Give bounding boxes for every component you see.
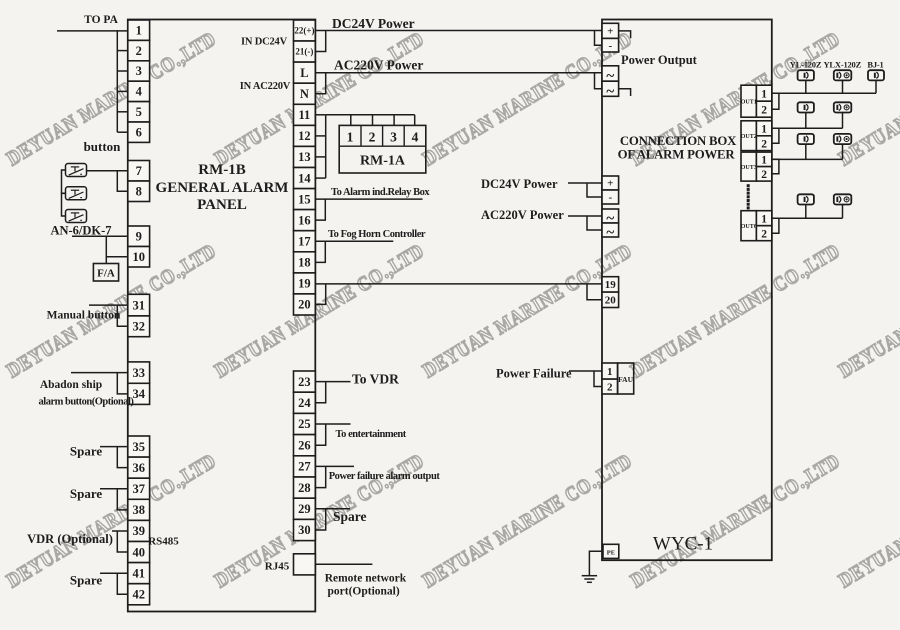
svg-text:29: 29 [298, 502, 311, 516]
svg-text:Remote network: Remote network [325, 573, 407, 585]
svg-text:~: ~ [606, 84, 614, 100]
svg-text:15: 15 [298, 192, 311, 206]
svg-text:37: 37 [132, 482, 145, 496]
svg-text:~: ~ [606, 225, 614, 241]
svg-text:VDR (Optional): VDR (Optional) [27, 532, 113, 546]
svg-text:RS485: RS485 [148, 536, 179, 548]
svg-text:To Fog Horn Controller: To Fog Horn Controller [328, 229, 426, 240]
svg-text:5: 5 [136, 105, 142, 119]
svg-text:alarm button(Optional): alarm button(Optional) [39, 397, 135, 408]
svg-text:2: 2 [761, 228, 767, 240]
svg-text:CONNECTION BOX: CONNECTION BOX [620, 134, 737, 148]
svg-text:1: 1 [761, 213, 767, 225]
svg-text:OUT6: OUT6 [741, 224, 757, 230]
svg-text:Abadon ship: Abadon ship [40, 379, 102, 391]
svg-text:GENERAL ALARM: GENERAL ALARM [156, 180, 289, 196]
svg-text:Spare: Spare [333, 509, 367, 524]
svg-text:3: 3 [390, 130, 397, 145]
svg-text:28: 28 [298, 481, 311, 495]
svg-text:RM-1B: RM-1B [198, 162, 246, 178]
svg-text:-: - [608, 40, 612, 52]
svg-text:19: 19 [298, 277, 311, 291]
svg-text:OUT3: OUT3 [741, 165, 757, 171]
svg-text:23: 23 [298, 375, 311, 389]
svg-text:L: L [300, 66, 308, 80]
svg-text:RJ45: RJ45 [265, 561, 290, 573]
svg-text:27: 27 [298, 460, 311, 474]
svg-text:-: - [608, 192, 612, 204]
svg-text:1: 1 [347, 130, 354, 145]
svg-text:35: 35 [132, 440, 145, 454]
svg-text:IN AC220V: IN AC220V [240, 81, 291, 92]
svg-text:38: 38 [132, 503, 145, 517]
svg-text:21(-): 21(-) [295, 47, 313, 57]
svg-text:17: 17 [298, 235, 311, 249]
svg-text:4: 4 [136, 85, 143, 99]
svg-text:11: 11 [298, 108, 310, 122]
svg-text:20: 20 [298, 298, 311, 312]
svg-text:+: + [607, 26, 613, 38]
svg-text:14: 14 [298, 171, 311, 185]
svg-text:9: 9 [136, 230, 142, 244]
svg-text:8: 8 [136, 185, 142, 199]
svg-text:7: 7 [136, 164, 142, 178]
svg-text:AC220V Power: AC220V Power [481, 208, 564, 222]
svg-text:PE: PE [607, 549, 615, 556]
svg-text:PANEL: PANEL [197, 197, 247, 213]
svg-text:25: 25 [298, 417, 311, 431]
svg-text:DC24V Power: DC24V Power [481, 177, 558, 191]
svg-text:34: 34 [132, 387, 145, 401]
svg-text:19: 19 [605, 279, 617, 291]
svg-text:3: 3 [136, 64, 142, 78]
svg-text:YLX-120Z: YLX-120Z [823, 60, 861, 70]
svg-text:port(Optional): port(Optional) [328, 586, 400, 598]
svg-text:2: 2 [369, 130, 376, 145]
svg-text:OF ALARM POWER: OF ALARM POWER [618, 148, 736, 162]
svg-text:FAU: FAU [618, 375, 633, 384]
svg-text:24: 24 [298, 396, 311, 410]
svg-text:1: 1 [761, 155, 767, 167]
svg-text:33: 33 [132, 366, 145, 380]
svg-text:IN DC24V: IN DC24V [241, 37, 288, 48]
svg-text:20: 20 [605, 295, 617, 307]
svg-text:Spare: Spare [70, 444, 102, 459]
svg-text:To entertainment: To entertainment [336, 429, 407, 440]
svg-text:DC24V Power: DC24V Power [332, 16, 415, 31]
svg-text:OUT1: OUT1 [741, 100, 757, 106]
svg-text:41: 41 [132, 566, 145, 580]
svg-text:Power Failure: Power Failure [496, 367, 572, 381]
svg-text:BJ-1: BJ-1 [867, 60, 883, 70]
svg-text:2: 2 [136, 44, 142, 58]
svg-text:Spare: Spare [70, 486, 102, 501]
svg-text:2: 2 [761, 138, 767, 150]
svg-text:36: 36 [132, 461, 145, 475]
svg-text:30: 30 [298, 523, 311, 537]
svg-text:16: 16 [298, 213, 311, 227]
svg-text:32: 32 [132, 320, 145, 334]
svg-text:26: 26 [298, 439, 311, 453]
svg-text:22(+): 22(+) [294, 26, 314, 36]
svg-text:2: 2 [761, 169, 767, 181]
svg-text:12: 12 [298, 129, 311, 143]
svg-text:1: 1 [761, 124, 767, 136]
svg-text:To Alarm ind.Relay Box: To Alarm ind.Relay Box [331, 187, 430, 198]
svg-text:WYC-1: WYC-1 [653, 534, 713, 555]
svg-text:42: 42 [132, 588, 145, 602]
svg-text:N: N [300, 87, 309, 101]
svg-text:40: 40 [132, 545, 145, 559]
svg-text:Power Output: Power Output [621, 53, 698, 67]
svg-text:To VDR: To VDR [352, 372, 399, 387]
svg-text:2: 2 [607, 381, 613, 393]
svg-text:+: + [607, 178, 613, 190]
svg-text:YL-120Z: YL-120Z [790, 60, 822, 70]
svg-text:1: 1 [136, 24, 142, 38]
svg-text:39: 39 [132, 524, 145, 538]
svg-text:AC220V Power: AC220V Power [334, 58, 423, 73]
svg-text:Spare: Spare [70, 573, 102, 588]
svg-text:10: 10 [132, 250, 145, 264]
svg-text:button: button [84, 139, 122, 154]
svg-text:AN-6/DK-7: AN-6/DK-7 [50, 224, 111, 238]
svg-text:1: 1 [607, 366, 613, 378]
svg-text:6: 6 [136, 125, 142, 139]
svg-text:18: 18 [298, 256, 311, 270]
svg-text:RM-1A: RM-1A [360, 154, 406, 169]
svg-text:2: 2 [761, 104, 767, 116]
svg-text:TO PA: TO PA [84, 14, 118, 26]
svg-text:1: 1 [761, 88, 767, 100]
svg-text:31: 31 [132, 298, 145, 312]
svg-text:Manual button: Manual button [47, 310, 121, 322]
svg-text:4: 4 [412, 130, 419, 145]
svg-text:OUT2: OUT2 [741, 134, 757, 140]
svg-text:F/A: F/A [97, 268, 115, 280]
svg-text:13: 13 [298, 150, 311, 164]
svg-text:Power failure alarm output: Power failure alarm output [329, 471, 441, 482]
